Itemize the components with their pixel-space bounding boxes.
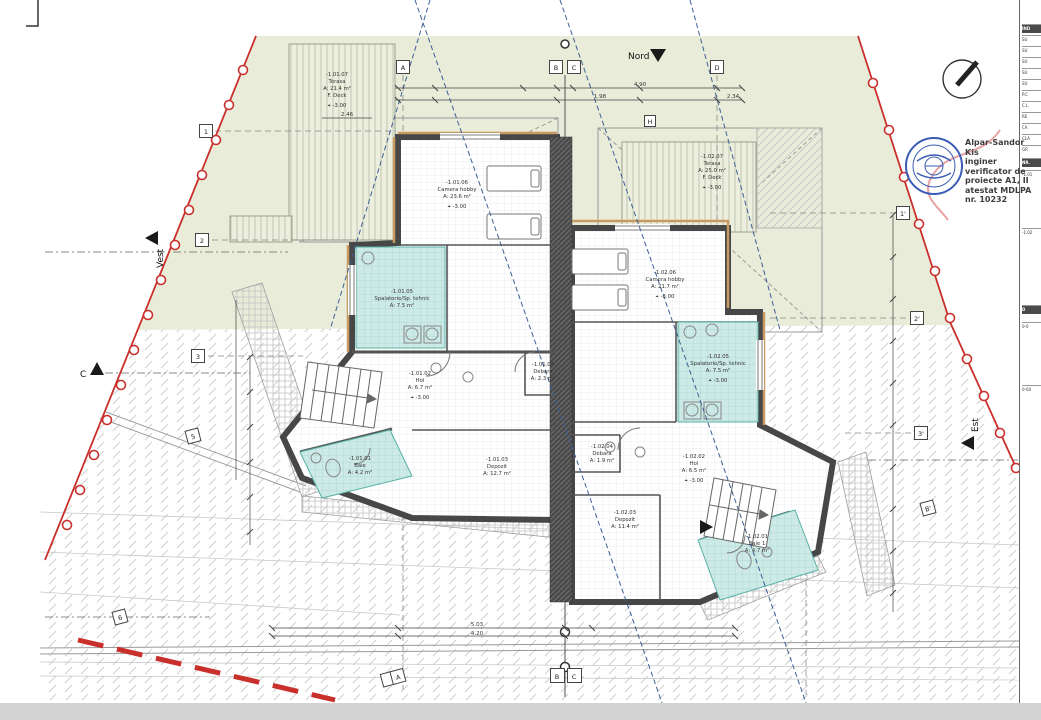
marker-3p-right: 3' <box>915 427 928 440</box>
level-mark-icon: ⌖ <box>411 395 414 401</box>
svg-text:3: 3 <box>196 353 200 361</box>
svg-text:⌖-3.00: ⌖-3.00 <box>685 478 704 484</box>
verifier-stamp: Alpar-Sandor Kis inginer verificator de … <box>903 128 1038 214</box>
marker-2p-right: 2' <box>911 312 924 325</box>
svg-text:A: 1.9 m²: A: 1.9 m² <box>590 457 614 464</box>
svg-text:Camera hobby: Camera hobby <box>438 187 477 193</box>
svg-text:2: 2 <box>200 237 204 245</box>
svg-text:⌖-3.00: ⌖-3.00 <box>703 185 722 191</box>
floor-plan-sheet: 2.46 4.90 1.98 2.34 5.03 4.20 A B C D H … <box>0 0 1041 720</box>
svg-text:Depozit: Depozit <box>487 464 507 470</box>
title-strip-row: C.L <box>1022 101 1041 110</box>
dim-420: 4.20 <box>471 631 484 637</box>
svg-text:A: 23.6 m²: A: 23.6 m² <box>443 193 471 200</box>
north-label: Nord <box>628 52 650 62</box>
svg-text:-1.02.03: -1.02.03 <box>614 510 636 516</box>
title-strip-row: RE <box>1022 112 1041 121</box>
dim-234: 2.34 <box>727 94 740 100</box>
svg-text:A: 2.3 m²: A: 2.3 m² <box>531 375 555 382</box>
room-label-1-02-03: -1.02.03 Depozit A: 11.4 m² <box>611 510 639 530</box>
svg-text:B: B <box>554 64 558 72</box>
title-strip-row: SU <box>1022 46 1041 55</box>
site-plan-drawing: 2.46 4.90 1.98 2.34 5.03 4.20 A B C D H … <box>0 0 1041 720</box>
marker-2-left: 2 <box>196 234 209 247</box>
svg-text:C: C <box>572 673 577 681</box>
marker-A-top: A <box>397 61 410 74</box>
level-mark-icon: ⌖ <box>703 185 706 191</box>
marker-B-bottom: B <box>551 669 565 683</box>
title-strip-row: SU <box>1022 68 1041 77</box>
svg-text:Camera hobby: Camera hobby <box>646 277 685 283</box>
svg-text:1: 1 <box>204 128 208 136</box>
marker-6-left: 6 <box>112 609 128 625</box>
room-label-1-01-03: -1.01.03 Depozit A: 12.7 m² <box>483 457 511 477</box>
level-mark-icon: ⌖ <box>656 294 659 300</box>
marker-D-top: D <box>711 61 724 74</box>
stamp-name: Alpar-Sandor Kis <box>965 138 1037 157</box>
svg-text:D: D <box>714 64 719 72</box>
svg-text:B: B <box>555 673 559 681</box>
svg-text:Debara: Debara <box>592 451 611 457</box>
marker-5-left: 5 <box>185 428 201 444</box>
dim-246: 2.46 <box>341 112 354 118</box>
title-strip-row: SU <box>1022 35 1041 44</box>
svg-text:-1.02.07: -1.02.07 <box>701 154 723 160</box>
svg-text:⌖-3.00: ⌖-3.00 <box>328 103 347 109</box>
footer-gray-bar <box>0 703 1041 720</box>
svg-text:-1.02.05: -1.02.05 <box>707 354 729 360</box>
dim-503: 5.03 <box>471 622 484 628</box>
marker-3-left: 3 <box>192 350 205 363</box>
stamp-line6: nr. 10232 <box>965 195 1037 205</box>
svg-text:2': 2' <box>914 315 920 323</box>
dim-198: 1.98 <box>594 94 607 100</box>
svg-text:A: 21.7 m²: A: 21.7 m² <box>651 283 679 290</box>
marker-1-left: 1 <box>200 125 213 138</box>
marker-H: H <box>645 116 656 127</box>
svg-text:Spalatorie/Sp. tehnic: Spalatorie/Sp. tehnic <box>690 361 745 367</box>
svg-text:-1.01.04: -1.01.04 <box>532 362 555 368</box>
stamp-seal-icon <box>903 128 965 198</box>
svg-text:⌖-3.00: ⌖-3.00 <box>411 395 430 401</box>
stairs-left <box>300 362 382 428</box>
svg-text:-1.01.01: -1.01.01 <box>349 456 371 462</box>
dim-490: 4.90 <box>634 82 647 88</box>
title-strip-row: 0-0 <box>1022 322 1041 331</box>
svg-text:A: 21.4 m²: A: 21.4 m² <box>323 85 351 92</box>
svg-text:A: 7.5 m²: A: 7.5 m² <box>706 367 730 374</box>
svg-text:-1.02.01: -1.02.01 <box>746 534 768 540</box>
svg-text:A: 6.5 m²: A: 6.5 m² <box>682 467 706 474</box>
marker-B-top: B <box>550 61 563 74</box>
svg-text:F. Deck: F. Deck <box>328 93 348 99</box>
stamp-role: inginer <box>965 157 1037 167</box>
svg-text:-1.02.02: -1.02.02 <box>683 454 705 460</box>
room-label-1-02-02: -1.02.02 Hol A: 6.5 m² ⌖-3.00 <box>682 454 706 484</box>
svg-text:A: 4.2 m²: A: 4.2 m² <box>348 469 372 476</box>
section-c-label: C <box>80 370 86 380</box>
svg-text:A: 11.4 m²: A: 11.4 m² <box>611 523 639 530</box>
marker-Bp-right: B' <box>920 500 936 516</box>
svg-text:Baie 1: Baie 1 <box>749 541 766 547</box>
title-strip-row: 0-04 <box>1022 385 1041 394</box>
svg-text:⌖-3.00: ⌖-3.00 <box>448 204 467 210</box>
svg-text:C: C <box>572 64 577 72</box>
stamp-line5: atestat MDLPA <box>965 186 1037 196</box>
svg-text:Hol: Hol <box>416 378 425 384</box>
room-label-1-01-02: -1.01.02 Hol A: 6.7 m² ⌖-3.00 <box>408 371 432 401</box>
svg-text:-1.02.04: -1.02.04 <box>591 444 614 450</box>
east-label: Est <box>971 418 981 432</box>
svg-text:-1.02.06: -1.02.06 <box>654 270 677 276</box>
svg-text:A: 4.7 m²: A: 4.7 m² <box>745 547 769 554</box>
svg-text:-1.01.05: -1.01.05 <box>391 289 413 295</box>
svg-text:A: 25.0 m²: A: 25.0 m² <box>698 167 726 174</box>
level-mark-icon: ⌖ <box>709 378 712 384</box>
svg-text:⌖-3.00: ⌖-3.00 <box>656 294 675 300</box>
svg-text:F. Deck: F. Deck <box>703 175 723 181</box>
svg-text:-1.01.06: -1.01.06 <box>446 180 469 186</box>
level-mark-icon: ⌖ <box>685 478 688 484</box>
svg-text:A: 7.5 m²: A: 7.5 m² <box>390 302 414 309</box>
svg-text:H: H <box>648 118 653 126</box>
room-label-1-02-04: -1.02.04 Debara A: 1.9 m² <box>590 444 614 464</box>
svg-text:Debara: Debara <box>533 369 552 375</box>
title-strip-row: -1.02 <box>1022 228 1041 237</box>
west-label: Vest <box>156 248 166 268</box>
svg-text:⌖-3.00: ⌖-3.00 <box>709 378 728 384</box>
level-mark-icon: ⌖ <box>328 103 331 109</box>
svg-text:-1.01.07: -1.01.07 <box>326 72 348 78</box>
title-strip-row: D <box>1022 305 1041 314</box>
svg-text:Baie: Baie <box>354 463 366 469</box>
svg-text:A: 6.7 m²: A: 6.7 m² <box>408 384 432 391</box>
svg-text:Spalatorie/Sp. tehnic: Spalatorie/Sp. tehnic <box>374 296 429 302</box>
svg-text:-1.01.03: -1.01.03 <box>486 457 508 463</box>
title-block-strip: IND SU SU SU SU SU P.C C.L RE CA CLA GR … <box>1019 0 1041 703</box>
title-strip-row: IND <box>1022 24 1041 33</box>
title-strip-row: P.C <box>1022 90 1041 99</box>
svg-text:Terasa: Terasa <box>702 161 720 167</box>
title-strip-row: SU <box>1022 79 1041 88</box>
marker-C-bottom: C <box>568 669 582 683</box>
svg-text:A: A <box>401 64 406 72</box>
level-mark-icon: ⌖ <box>448 204 451 210</box>
svg-text:Terasa: Terasa <box>327 79 345 85</box>
svg-text:3': 3' <box>918 430 924 438</box>
party-wall <box>550 137 572 602</box>
svg-text:-1.01.02: -1.01.02 <box>409 371 431 377</box>
title-strip-row: SU <box>1022 57 1041 66</box>
stamp-line4: proiecte A1, II <box>965 176 1037 186</box>
marker-C-top: C <box>568 61 581 74</box>
svg-text:Depozit: Depozit <box>615 517 635 523</box>
room-label-1-01-04: -1.01.04 Debara A: 2.3 m² <box>531 362 555 382</box>
stamp-line3: verificator de <box>965 167 1037 177</box>
svg-text:Hol: Hol <box>690 461 699 467</box>
svg-text:A: 12.7 m²: A: 12.7 m² <box>483 470 511 477</box>
